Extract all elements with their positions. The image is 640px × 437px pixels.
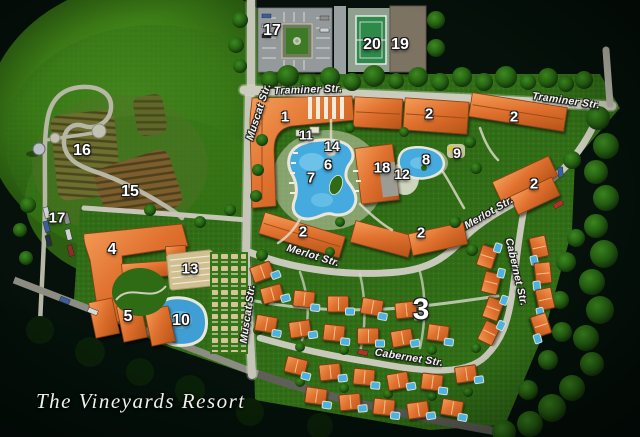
resort-map: Traminer Str.Traminer Str.Muscat Str.Mus…	[0, 0, 640, 437]
map-artwork	[0, 0, 640, 437]
vignette-overlay	[0, 0, 640, 437]
resort-title: The Vineyards Resort	[36, 389, 246, 414]
